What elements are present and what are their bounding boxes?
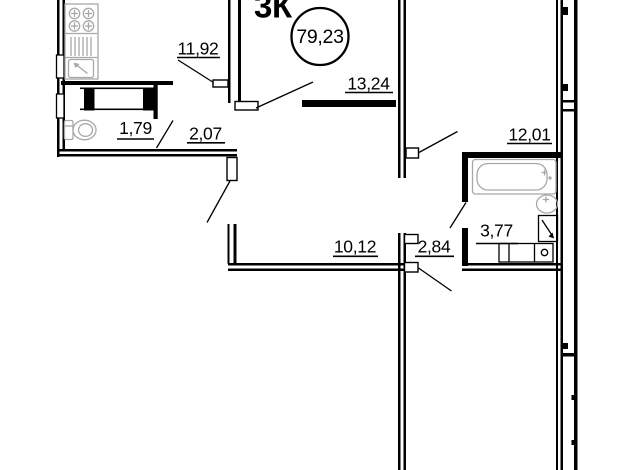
wall [57,149,237,152]
wall [462,263,563,266]
entrance-door-jamb [227,158,237,181]
door-jamb [405,235,419,244]
wall [228,263,405,266]
sink-icon [69,60,94,78]
wall [234,224,237,264]
area-label-corridor: 2,84 [418,237,451,257]
window-tick [563,84,568,91]
wall [398,0,401,178]
stove-icon [69,8,93,31]
window-tick [563,343,568,349]
shower-icon [539,216,558,242]
floor-plan: 3К 79,23 11,92 13,24 12,01 1,79 2,07 10,… [0,0,644,470]
wall [462,228,468,266]
area-label-living-room: 13,24 [347,74,390,94]
wall [302,100,396,107]
total-area-value: 79,23 [296,26,343,48]
plan-title: 3К [254,0,293,25]
area-label-bathroom: 3,77 [480,221,513,241]
wall [462,152,563,158]
door-jamb [235,102,258,111]
table-leg [143,88,154,111]
kitchen-unit [65,4,98,79]
entrance-door-leaf [207,181,230,223]
wall [462,158,468,202]
washing-machine-icon [499,244,553,263]
drainer-icon [71,37,91,56]
area-label-bedroom-left: 10,12 [334,237,376,257]
door-jambs [213,80,419,272]
wall [228,269,405,272]
area-label-wc: 1,79 [119,118,152,138]
bathtub-icon [473,160,557,195]
dining-area [61,81,173,119]
kitchen-door-leaf [178,60,214,83]
wall [238,0,241,103]
wall [561,0,564,470]
door-jamb [406,148,419,158]
total-area-badge: 79,23 [292,8,349,65]
window-tick [572,440,577,445]
wall [462,269,563,272]
door-jamb [213,80,228,87]
wc-partition-wall [154,85,158,119]
door-jamb [405,263,419,273]
wall [57,154,237,157]
window-sill [563,100,574,103]
wall [228,224,230,264]
area-label-bedroom-right: 12,01 [508,125,550,145]
bottom-room-door-leaf [419,268,452,291]
window-tick [563,7,568,15]
wc-door-leaf [157,121,174,149]
counter-bar [61,81,173,85]
window-frame [57,94,65,118]
window-sill [563,353,574,357]
window-sill [563,109,574,112]
bedroom-right-door-leaf [418,132,458,154]
bathroom-door-leaf [450,203,466,229]
room-area-labels: 11,92 13,24 12,01 1,79 2,07 10,12 2,84 3… [117,39,552,257]
window-frame [57,55,65,78]
window-tick [572,395,577,400]
area-label-kitchen: 11,92 [178,39,219,59]
floor-plan-canvas: 3К 79,23 11,92 13,24 12,01 1,79 2,07 10,… [0,0,644,470]
table-leg [84,88,95,111]
washbasin-icon [537,195,558,213]
toilet-icon [65,120,97,140]
area-label-hallway: 2,07 [189,124,222,144]
